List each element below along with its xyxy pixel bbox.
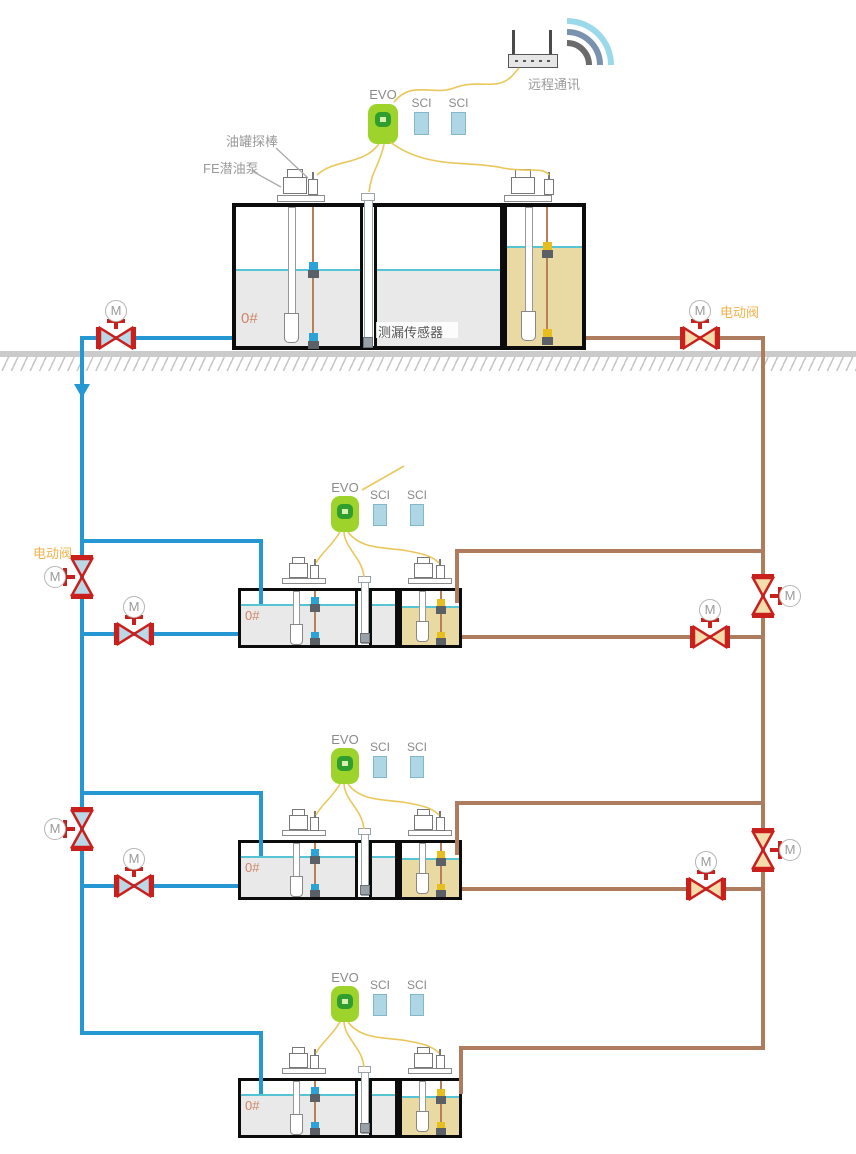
evo-screen bbox=[337, 756, 353, 771]
tank1-right-probe-stem bbox=[548, 172, 550, 179]
tank3-right-pump-cylinder bbox=[416, 873, 429, 894]
tank3-tan-liquid bbox=[402, 860, 459, 897]
tank2-left-probe-stem bbox=[314, 559, 316, 565]
tank3-grade-label: 0# bbox=[245, 860, 277, 876]
evo-screen bbox=[337, 994, 353, 1009]
pipe-brown-st2-drop bbox=[455, 549, 459, 603]
router-led bbox=[547, 60, 550, 62]
diagram-canvas: 0#测漏传感器0#0#0# M M M M bbox=[0, 0, 856, 1154]
tank3-right-pump-body bbox=[414, 815, 433, 830]
tank1-right-bottom-sensor-base bbox=[542, 337, 553, 345]
tank2-left-probe-head bbox=[310, 565, 319, 579]
pipe-brown-st4-top bbox=[459, 1046, 765, 1050]
wire-st2-leak-tube bbox=[344, 532, 364, 577]
evo-label: EVO bbox=[360, 87, 406, 101]
remote-comm-label: 远程通讯 bbox=[528, 74, 588, 90]
tank2-right-pump-body bbox=[414, 563, 433, 578]
wire-st2-uplink bbox=[362, 466, 404, 490]
motor-actuator-badge: M bbox=[44, 818, 66, 840]
motor-actuator-badge: M bbox=[689, 300, 711, 322]
sci-module bbox=[410, 994, 424, 1016]
ground-hatch bbox=[0, 357, 856, 371]
tank1-left-pump-body bbox=[283, 177, 307, 194]
router-antenna-right bbox=[549, 30, 552, 56]
tank4-left-pump-cap bbox=[292, 1047, 305, 1054]
motor-actuator-badge: M bbox=[123, 848, 145, 870]
wire-st4-leak-tube bbox=[344, 1022, 364, 1067]
tank4-left-probe-stem bbox=[314, 1049, 316, 1055]
tank2-right-level-base bbox=[436, 606, 446, 614]
sci-module bbox=[414, 112, 429, 135]
tank1-right-pump-cylinder bbox=[521, 311, 536, 341]
tank4-right-pump-flange bbox=[408, 1068, 452, 1074]
sci-label: SCI bbox=[366, 978, 394, 991]
tank3-left-pump-body bbox=[289, 815, 308, 830]
tank4-left-bottom-base bbox=[310, 1128, 320, 1135]
tank2-left-pump-body bbox=[289, 563, 308, 578]
tank3-right-pump-cap bbox=[417, 809, 430, 816]
sci-module bbox=[373, 994, 387, 1016]
pipe-brown-st3-drop bbox=[455, 801, 459, 855]
router-led bbox=[539, 60, 542, 62]
flow-arrow-down bbox=[74, 384, 90, 398]
pipe-blue-main-riser bbox=[80, 336, 84, 1035]
tank4-tan-level bbox=[402, 1096, 459, 1098]
tank1-right-probe-wire bbox=[546, 207, 548, 340]
tank2-tan-level bbox=[402, 606, 459, 608]
evo-screen bbox=[375, 112, 391, 127]
sci-module bbox=[451, 112, 466, 135]
sci-module bbox=[373, 756, 387, 778]
evo-label: EVO bbox=[323, 480, 367, 494]
sci-label: SCI bbox=[403, 488, 431, 501]
tank2-left-bottom-base bbox=[310, 638, 320, 645]
submersible-pump-label: FE潜油泵 bbox=[203, 158, 273, 173]
tank4-leak-cap bbox=[358, 1066, 371, 1073]
tank2-left-pump-flange bbox=[282, 578, 326, 584]
electric-valve-label-st1: 电动阀 bbox=[720, 302, 772, 317]
motor-actuator-badge: M bbox=[44, 566, 66, 588]
motor-actuator-badge: M bbox=[779, 839, 801, 861]
tank1-left-level-sensor-base bbox=[308, 270, 319, 278]
tank4-left-level-base bbox=[310, 1094, 320, 1102]
tank3-left-probe-stem bbox=[314, 811, 316, 817]
tank2-tan-liquid bbox=[402, 608, 459, 645]
tank3-left-probe-head bbox=[310, 817, 319, 831]
tank3-right-probe-stem bbox=[439, 811, 441, 817]
tank4-left-pump-body bbox=[289, 1053, 308, 1068]
tank2-right-pump-cylinder bbox=[416, 621, 429, 642]
tank4-right-pump-cap bbox=[417, 1047, 430, 1054]
tank3-right-level-base bbox=[436, 858, 446, 866]
sci-module bbox=[373, 504, 387, 526]
pipe-blue-st4-drop bbox=[259, 1031, 263, 1094]
tank1-left-pump-flange bbox=[277, 195, 325, 202]
pipe-blue-st4-top bbox=[82, 1031, 263, 1035]
tank3-left-bottom-base bbox=[310, 890, 320, 897]
sci-label: SCI bbox=[407, 96, 436, 110]
tank4-left-pump-flange bbox=[282, 1068, 326, 1074]
tank1-grade-label: 0# bbox=[241, 310, 277, 328]
sci-label: SCI bbox=[403, 978, 431, 991]
tank2-right-probe-stem bbox=[439, 559, 441, 565]
evo-label: EVO bbox=[323, 732, 367, 746]
router-led bbox=[531, 60, 534, 62]
leak-sensor-label: 测漏传感器 bbox=[376, 322, 458, 338]
tank2-right-bottom-base bbox=[436, 638, 446, 645]
wire-st1-leak-tube bbox=[369, 144, 384, 192]
tank1-left-bottom-sensor-base bbox=[308, 341, 319, 349]
tank3-tan-level bbox=[402, 858, 459, 860]
tank4-right-level-base bbox=[436, 1096, 446, 1104]
tank2-right-pump-flange bbox=[408, 578, 452, 584]
tank4-right-bottom-base bbox=[436, 1128, 446, 1135]
pipe-blue-st3-top bbox=[82, 791, 263, 795]
tank4-divider bbox=[395, 1081, 402, 1135]
tank3-right-pump-flange bbox=[408, 830, 452, 836]
pipe-blue-st2-top bbox=[82, 539, 263, 543]
wifi-arc-inner bbox=[567, 43, 589, 65]
tank1-leak-cap bbox=[361, 193, 375, 201]
wifi-arc-outer bbox=[567, 21, 611, 65]
evo-screen bbox=[337, 504, 353, 519]
tank4-left-pump-cylinder bbox=[290, 1114, 303, 1135]
tank-probe-label: 油罐探棒 bbox=[226, 131, 286, 146]
tank3-left-pump-cylinder bbox=[290, 876, 303, 897]
tank1-right-level-sensor-base bbox=[542, 250, 553, 258]
tank1-divider bbox=[500, 207, 507, 346]
pipe-brown-st4-drop bbox=[459, 1046, 463, 1094]
tank4-tan-liquid bbox=[402, 1098, 459, 1135]
tank4-right-pump-body bbox=[414, 1053, 433, 1068]
tank2-leak-sensor bbox=[360, 633, 370, 643]
tank1-left-pump-cap bbox=[287, 169, 303, 178]
tank2-grade-label: 0# bbox=[245, 608, 277, 624]
tank3-left-level-base bbox=[310, 856, 320, 864]
tank1-right-pump-flange bbox=[504, 195, 552, 202]
motor-actuator-badge: M bbox=[105, 300, 127, 322]
wifi-arc-mid bbox=[567, 32, 600, 65]
tank4-right-pump-cylinder bbox=[416, 1111, 429, 1132]
pipe-blue-st3-drop bbox=[259, 791, 263, 856]
tank3-leak-sensor bbox=[360, 885, 370, 895]
wire-st3-leak-tube bbox=[344, 784, 364, 829]
tank4-right-probe-head bbox=[436, 1055, 445, 1069]
sci-label: SCI bbox=[403, 740, 431, 753]
tank3-right-bottom-base bbox=[436, 890, 446, 897]
wire-st3-left-probe bbox=[316, 784, 340, 815]
tank2-left-level-base bbox=[310, 604, 320, 612]
tank1-left-pump-cylinder bbox=[284, 313, 299, 343]
sci-label: SCI bbox=[444, 96, 473, 110]
tank3-left-pump-cap bbox=[292, 809, 305, 816]
tank1-right-pump-body bbox=[511, 177, 535, 194]
sci-label: SCI bbox=[366, 488, 394, 501]
tank1-leak-sensor bbox=[363, 337, 373, 348]
tank1-leak-tube bbox=[364, 200, 373, 345]
tank1-right-probe-head bbox=[544, 179, 554, 195]
sci-module bbox=[410, 504, 424, 526]
tank4-left-probe-head bbox=[310, 1055, 319, 1069]
motor-actuator-badge: M bbox=[123, 596, 145, 618]
wire-st1-left-probe bbox=[317, 144, 379, 175]
sci-module bbox=[410, 756, 424, 778]
tank4-grade-label: 0# bbox=[245, 1098, 277, 1114]
tank2-left-pump-cap bbox=[292, 557, 305, 564]
tank4-right-probe-stem bbox=[439, 1049, 441, 1055]
tank2-right-probe-head bbox=[436, 565, 445, 579]
motor-actuator-badge: M bbox=[695, 851, 717, 873]
tank1-left-probe-head bbox=[308, 179, 318, 195]
electric-valve-label-st2: 电动阀 bbox=[33, 543, 85, 558]
wire-st2-left-probe bbox=[316, 532, 340, 563]
motor-actuator-badge: M bbox=[779, 585, 801, 607]
motor-actuator-badge: M bbox=[699, 599, 721, 621]
tank2-left-pump-cylinder bbox=[290, 624, 303, 645]
pipe-brown-st2-top bbox=[455, 549, 765, 553]
pipe-brown-st3-top bbox=[455, 801, 765, 805]
tank2-right-pump-cap bbox=[417, 557, 430, 564]
tank3-divider bbox=[395, 843, 402, 897]
tank1-right-pump-cap bbox=[515, 169, 531, 178]
tank4-leak-sensor bbox=[360, 1123, 370, 1133]
router-led bbox=[515, 60, 518, 62]
pipe-blue-st2-drop bbox=[259, 539, 263, 604]
wire-st4-left-probe bbox=[316, 1022, 340, 1053]
tank2-leak-cap bbox=[358, 576, 371, 583]
tank2-divider bbox=[395, 591, 402, 645]
tank1-left-probe-stem bbox=[312, 172, 314, 179]
tank3-leak-cap bbox=[358, 828, 371, 835]
router-antenna-left bbox=[512, 30, 515, 56]
tank1-left-pump-tube bbox=[288, 207, 296, 315]
evo-label: EVO bbox=[323, 970, 367, 984]
tank1-right-pump-tube bbox=[525, 207, 533, 313]
router-led bbox=[523, 60, 526, 62]
tank3-left-pump-flange bbox=[282, 830, 326, 836]
tank3-right-probe-head bbox=[436, 817, 445, 831]
sci-label: SCI bbox=[366, 740, 394, 753]
pipe-brown-main-riser bbox=[761, 336, 765, 1050]
